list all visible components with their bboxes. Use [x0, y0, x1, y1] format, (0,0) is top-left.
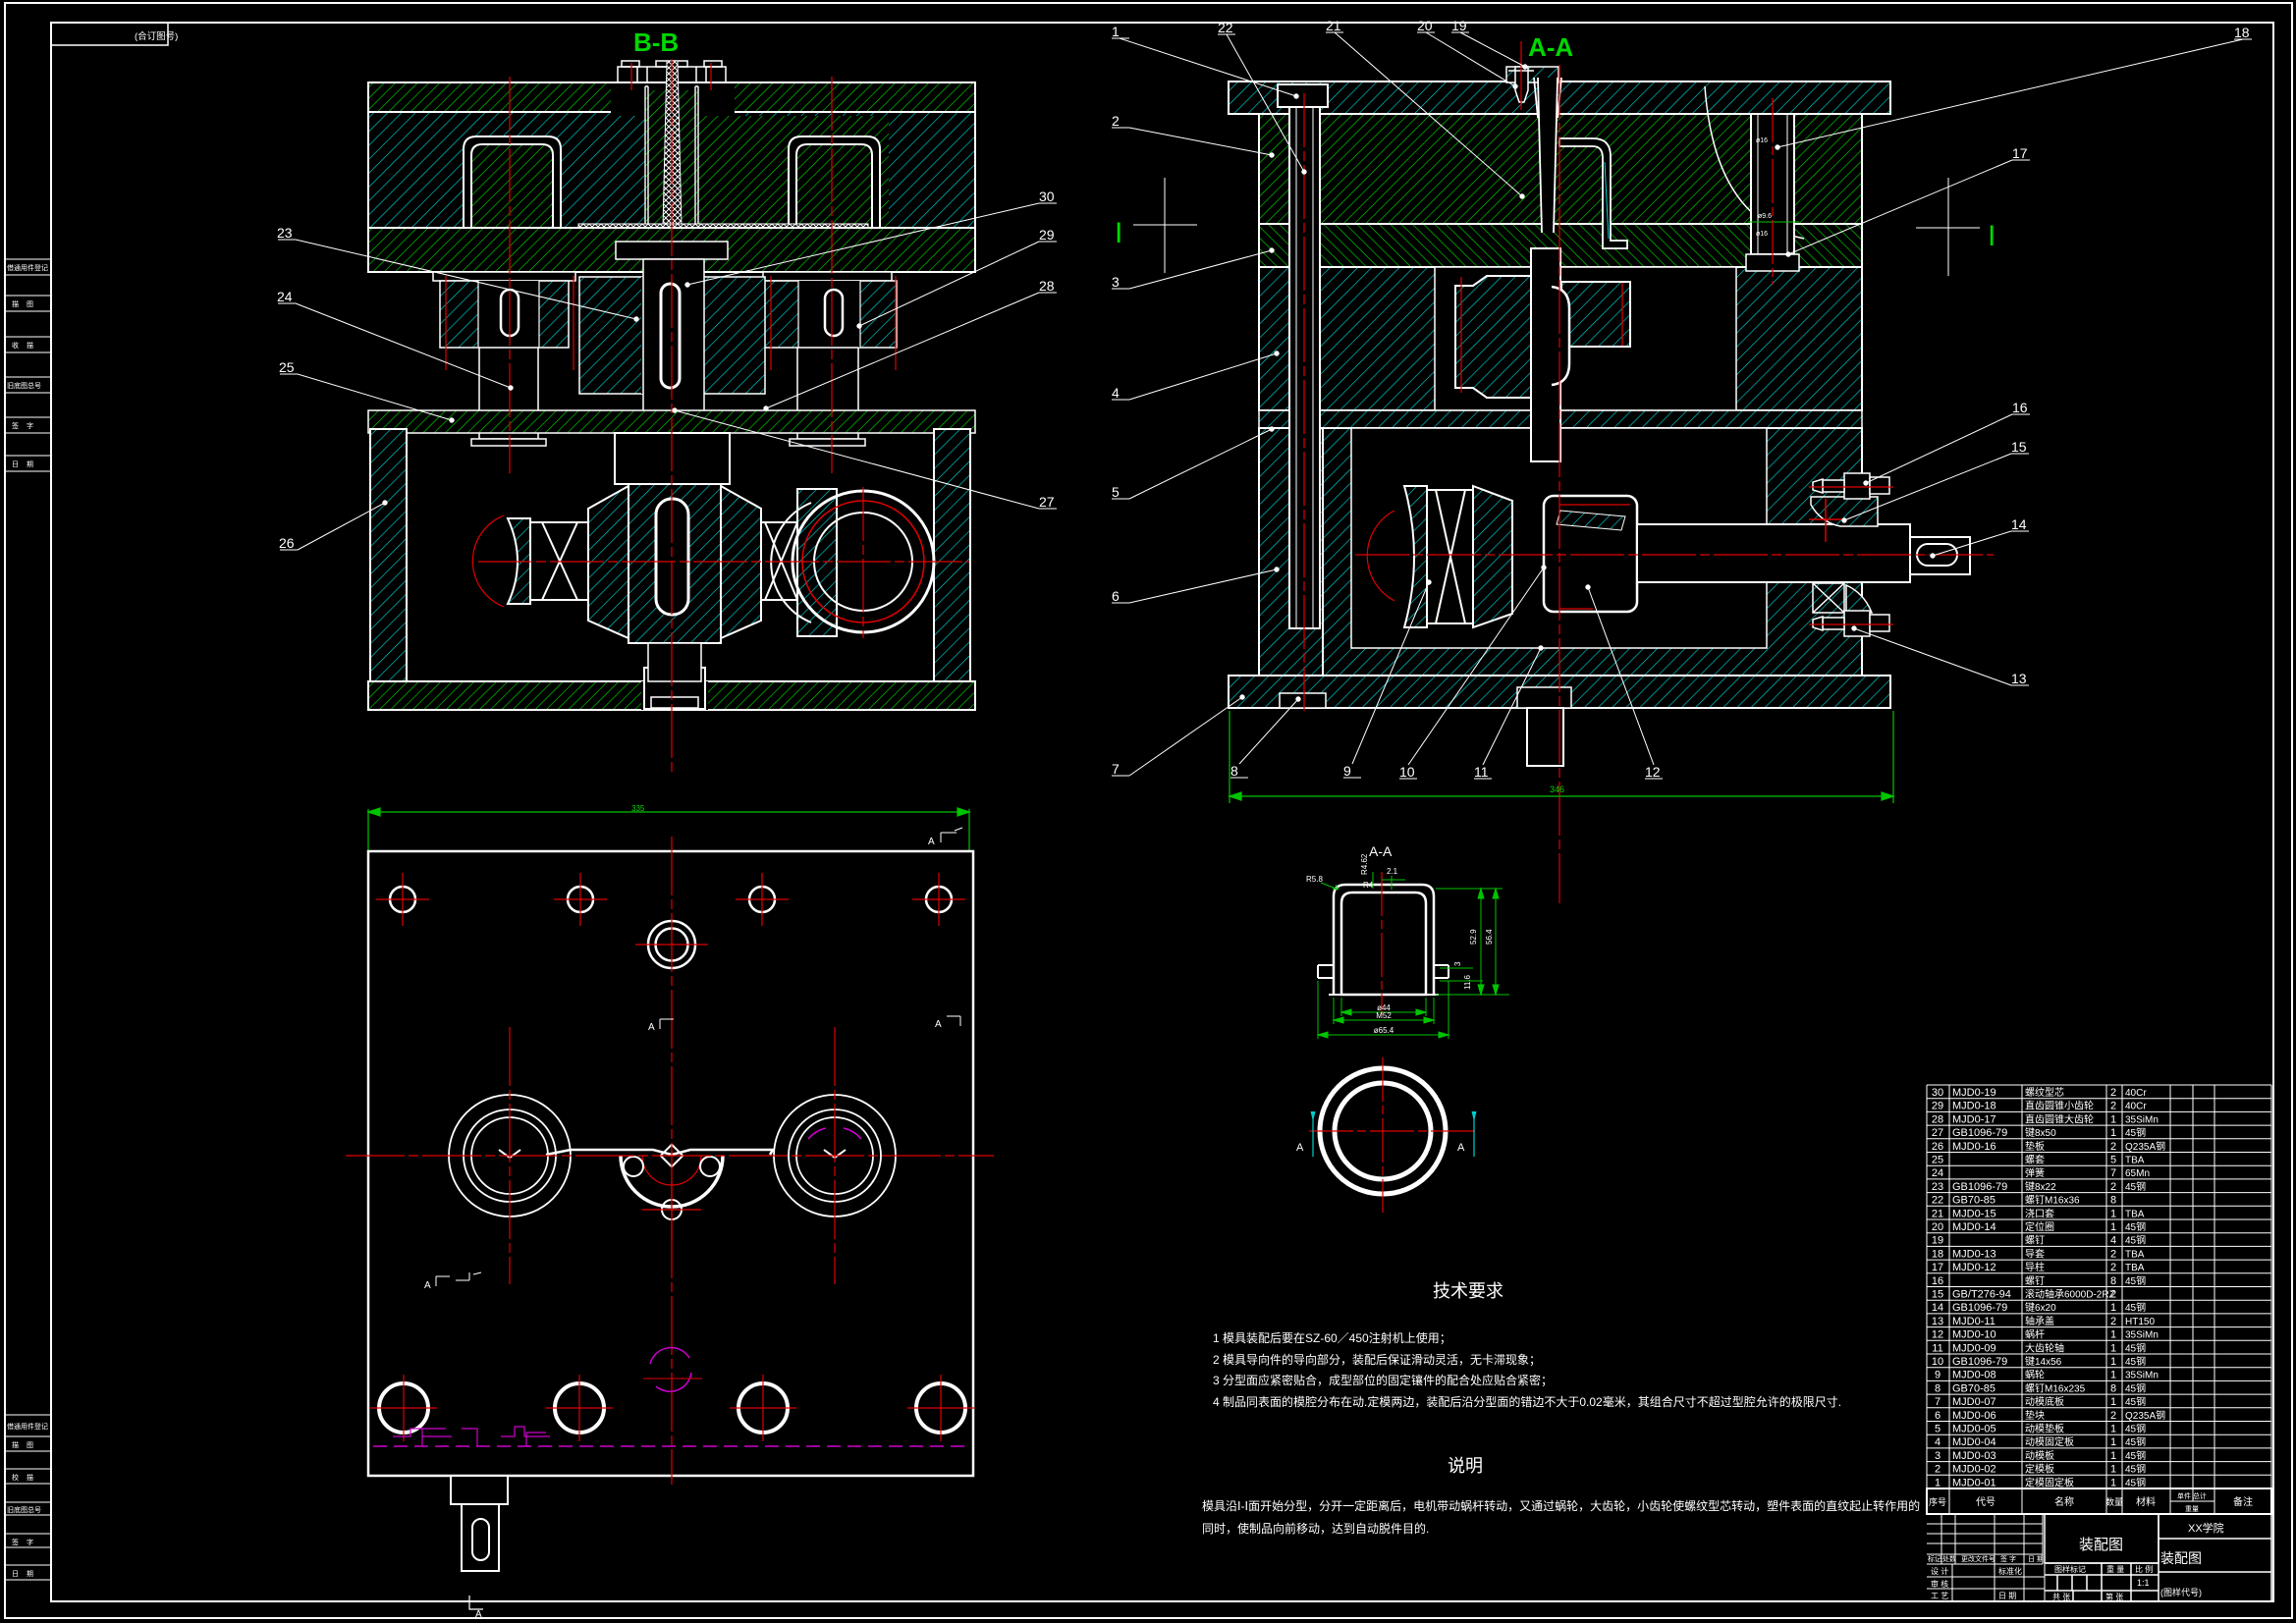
svg-text:20: 20: [1417, 18, 1433, 33]
svg-text:1: 1: [2110, 1477, 2116, 1488]
svg-text:动模底板: 动模底板: [2025, 1395, 2064, 1408]
svg-text:27: 27: [1039, 494, 1055, 510]
svg-text:16: 16: [1932, 1275, 1943, 1287]
svg-text:垫板: 垫板: [2025, 1140, 2045, 1153]
svg-text:动模板: 动模板: [2025, 1449, 2054, 1462]
svg-text:22: 22: [1932, 1195, 1943, 1207]
svg-text:MJD0-04: MJD0-04: [1952, 1436, 1996, 1448]
svg-text:旧底图总号: 旧底图总号: [7, 1505, 41, 1514]
svg-text:29: 29: [1039, 227, 1055, 243]
svg-text:45钢: 45钢: [2125, 1234, 2146, 1247]
svg-text:垫块: 垫块: [2025, 1409, 2045, 1422]
svg-text:MJD0-07: MJD0-07: [1952, 1396, 1996, 1408]
svg-text:共 张: 共 张: [2052, 1593, 2070, 1601]
svg-text:9: 9: [1935, 1370, 1941, 1381]
svg-text:技术要求: 技术要求: [1433, 1281, 1503, 1301]
svg-text:MJD0-18: MJD0-18: [1952, 1101, 1996, 1112]
svg-text:MJD0-14: MJD0-14: [1952, 1221, 1996, 1233]
svg-text:27: 27: [1932, 1127, 1943, 1139]
svg-text:A: A: [424, 1280, 431, 1291]
svg-text:GB70-85: GB70-85: [1952, 1195, 1995, 1207]
svg-text:21: 21: [1932, 1208, 1943, 1219]
svg-text:GB1096-79: GB1096-79: [1952, 1356, 2007, 1368]
svg-text:18: 18: [1932, 1248, 1943, 1260]
svg-text:签 字: 签 字: [2000, 1554, 2016, 1563]
svg-text:I: I: [1115, 217, 1122, 249]
svg-text:键6x20: 键6x20: [2025, 1301, 2056, 1314]
svg-text:14: 14: [2011, 516, 2027, 532]
svg-text:TBA: TBA: [2125, 1209, 2145, 1219]
svg-text:键8x22: 键8x22: [2025, 1180, 2056, 1193]
svg-text:45钢: 45钢: [2125, 1341, 2146, 1354]
svg-text:24: 24: [1932, 1167, 1943, 1179]
svg-text:直齿圆锥小齿轮: 直齿圆锥小齿轮: [2025, 1100, 2094, 1112]
svg-text:HT150: HT150: [2125, 1317, 2155, 1327]
svg-text:MJD0-12: MJD0-12: [1952, 1262, 1996, 1273]
svg-text:6: 6: [1935, 1410, 1941, 1422]
svg-text:6: 6: [1112, 588, 1120, 604]
svg-text:45钢: 45钢: [2125, 1463, 2146, 1476]
svg-text:45钢: 45钢: [2125, 1126, 2146, 1139]
svg-text:4: 4: [2110, 1235, 2116, 1247]
svg-text:5: 5: [1112, 484, 1120, 500]
svg-text:30: 30: [1039, 189, 1055, 204]
svg-text:A: A: [935, 1019, 942, 1030]
svg-text:大齿轮轴: 大齿轮轴: [2025, 1341, 2064, 1354]
svg-text:借通用件登记: 借通用件登记: [7, 1422, 48, 1431]
svg-text:比 例: 比 例: [2135, 1564, 2153, 1574]
svg-text:动模固定板: 动模固定板: [2025, 1435, 2074, 1448]
svg-text:8: 8: [2110, 1275, 2116, 1287]
svg-text:MJD0-16: MJD0-16: [1952, 1141, 1996, 1153]
svg-text:3: 3: [1112, 274, 1120, 290]
svg-text:校描: 校描: [12, 1473, 41, 1482]
svg-text:45钢: 45钢: [2125, 1274, 2146, 1287]
svg-text:导套: 导套: [2025, 1247, 2045, 1260]
svg-text:A: A: [475, 1609, 482, 1620]
svg-text:2: 2: [2110, 1101, 2116, 1112]
svg-text:45钢: 45钢: [2125, 1395, 2146, 1408]
svg-text:28: 28: [1932, 1113, 1943, 1125]
svg-text:MJD0-13: MJD0-13: [1952, 1248, 1996, 1260]
svg-text:1: 1: [1112, 24, 1120, 39]
svg-text:Q235A钢: Q235A钢: [2125, 1140, 2165, 1153]
svg-text:动模垫板: 动模垫板: [2025, 1423, 2064, 1435]
svg-text:MJD0-19: MJD0-19: [1952, 1087, 1996, 1099]
svg-text:1: 1: [2110, 1329, 2116, 1341]
svg-text:键14x56: 键14x56: [2025, 1355, 2062, 1368]
svg-text:3 分型面应紧密贴合，成型部位的固定镶件的配合处应贴合紧密: 3 分型面应紧密贴合，成型部位的固定镶件的配合处应贴合紧密；: [1213, 1373, 1553, 1387]
svg-text:1: 1: [2110, 1450, 2116, 1462]
svg-text:2: 2: [2110, 1316, 2116, 1327]
svg-text:MJD0-06: MJD0-06: [1952, 1410, 1996, 1422]
svg-text:7: 7: [1935, 1396, 1941, 1408]
svg-text:螺钉M16x36: 螺钉M16x36: [2025, 1195, 2080, 1207]
svg-text:3: 3: [1935, 1450, 1941, 1462]
svg-text:4 制品同表面的模腔分布在动.定模两边，装配后沿分型面的错: 4 制品同表面的模腔分布在动.定模两边，装配后沿分型面的错边不大于0.02毫米，…: [1213, 1394, 1841, 1409]
svg-text:MJD0-05: MJD0-05: [1952, 1424, 1996, 1435]
svg-text:R5.8: R5.8: [1306, 875, 1323, 884]
svg-text:40Cr: 40Cr: [2125, 1102, 2147, 1112]
svg-text:10: 10: [1932, 1356, 1943, 1368]
svg-text:序号: 序号: [1929, 1496, 1946, 1507]
svg-text:GB/T276-94: GB/T276-94: [1952, 1289, 2011, 1301]
svg-text:签字: 签字: [12, 1538, 41, 1546]
svg-text:1: 1: [2110, 1436, 2116, 1448]
svg-text:14: 14: [1932, 1302, 1943, 1314]
svg-text:MJD0-15: MJD0-15: [1952, 1208, 1996, 1219]
svg-text:签字: 签字: [12, 421, 41, 430]
svg-text:45钢: 45钢: [2125, 1220, 2146, 1233]
svg-text:19: 19: [1932, 1235, 1943, 1247]
svg-text:11: 11: [1474, 764, 1489, 780]
svg-text:45钢: 45钢: [2125, 1355, 2146, 1368]
svg-text:MJD0-11: MJD0-11: [1952, 1316, 1995, 1327]
svg-text:1: 1: [2110, 1127, 2116, 1139]
svg-text:2: 2: [2110, 1262, 2116, 1273]
svg-text:第 张: 第 张: [2105, 1592, 2123, 1601]
svg-text:Q235A钢: Q235A钢: [2125, 1409, 2165, 1422]
svg-text:21: 21: [1326, 18, 1341, 33]
svg-text:45钢: 45钢: [2125, 1435, 2146, 1448]
svg-text:35SiMn: 35SiMn: [2125, 1330, 2159, 1341]
svg-text:收描: 收描: [12, 341, 41, 350]
svg-text:1: 1: [2110, 1342, 2116, 1354]
svg-text:旧底图总号: 旧底图总号: [7, 381, 41, 390]
svg-text:1: 1: [2110, 1302, 2116, 1314]
svg-text:ø16: ø16: [1756, 231, 1768, 238]
svg-text:浇口套: 浇口套: [2025, 1207, 2054, 1219]
svg-text:ø16: ø16: [1756, 137, 1768, 144]
svg-text:4: 4: [1112, 385, 1120, 401]
svg-text:定模固定板: 定模固定板: [2025, 1476, 2074, 1488]
svg-text:螺纹型芯: 螺纹型芯: [2025, 1086, 2064, 1099]
svg-text:2: 2: [2110, 1141, 2116, 1153]
svg-text:更改文件号: 更改文件号: [1961, 1554, 1995, 1563]
svg-text:8: 8: [1935, 1382, 1941, 1394]
svg-text:16: 16: [2012, 400, 2028, 415]
svg-text:A: A: [648, 1022, 655, 1033]
svg-text:I: I: [1988, 220, 1995, 252]
svg-text:2: 2: [2110, 1248, 2116, 1260]
svg-text:R4: R4: [1363, 881, 1374, 890]
svg-text:2: 2: [2110, 1087, 2116, 1099]
svg-text:29: 29: [1932, 1101, 1943, 1112]
svg-text:GB1096-79: GB1096-79: [1952, 1302, 2007, 1314]
svg-text:52.9: 52.9: [1469, 929, 1478, 945]
svg-text:35SiMn: 35SiMn: [2125, 1371, 2159, 1381]
svg-text:13: 13: [2011, 671, 2027, 686]
svg-text:45钢: 45钢: [2125, 1476, 2146, 1488]
svg-text:日 期: 日 期: [2028, 1555, 2044, 1563]
svg-text:MJD0-02: MJD0-02: [1952, 1464, 1996, 1476]
svg-text:1: 1: [2110, 1221, 2116, 1233]
svg-text:日期: 日期: [12, 460, 41, 468]
svg-text:9: 9: [1343, 763, 1351, 779]
svg-text:日期: 日期: [12, 1570, 41, 1578]
svg-text:28: 28: [1039, 278, 1055, 294]
svg-text:45钢: 45钢: [2125, 1449, 2146, 1462]
svg-text:A: A: [928, 837, 935, 847]
svg-text:日 期: 日 期: [1998, 1592, 2016, 1600]
svg-text:22: 22: [1218, 20, 1233, 35]
svg-text:15: 15: [1932, 1289, 1943, 1301]
svg-text:1 模具装配后要在SZ-60／450注射机上使用；: 1 模具装配后要在SZ-60／450注射机上使用；: [1213, 1330, 1451, 1345]
svg-text:12: 12: [1932, 1329, 1943, 1341]
svg-text:R4.62: R4.62: [1360, 853, 1369, 875]
svg-text:2: 2: [2110, 1181, 2116, 1193]
svg-text:螺钉: 螺钉: [2025, 1275, 2045, 1287]
svg-text:MJD0-10: MJD0-10: [1952, 1329, 1996, 1341]
svg-text:说明: 说明: [1448, 1456, 1483, 1476]
svg-text:1: 1: [2110, 1370, 2116, 1381]
svg-text:2: 2: [1112, 113, 1120, 129]
svg-text:26: 26: [1932, 1141, 1943, 1153]
svg-text:25: 25: [1932, 1155, 1943, 1166]
svg-text:346: 346: [1550, 784, 1564, 794]
svg-text:15: 15: [2011, 439, 2027, 455]
svg-text:GB1096-79: GB1096-79: [1952, 1127, 2007, 1139]
svg-text:装配图: 装配图: [2079, 1537, 2123, 1553]
svg-text:定模板: 定模板: [2025, 1463, 2054, 1476]
svg-text:1: 1: [1935, 1477, 1941, 1488]
svg-text:2: 2: [2110, 1289, 2116, 1301]
svg-text:备注: 备注: [2233, 1495, 2253, 1508]
svg-text:2 模具导向件的导向部分，装配后保证滑动灵活，无卡滞现象；: 2 模具导向件的导向部分，装配后保证滑动灵活，无卡滞现象；: [1213, 1352, 1541, 1367]
svg-text:5: 5: [2110, 1155, 2116, 1166]
svg-text:蜗轮: 蜗轮: [2025, 1369, 2045, 1381]
svg-text:图样标记: 图样标记: [2054, 1564, 2086, 1574]
svg-text:23: 23: [277, 225, 293, 241]
svg-text:标记: 标记: [1928, 1554, 1941, 1563]
svg-text:11.6: 11.6: [1463, 974, 1472, 990]
svg-text:2.1: 2.1: [1387, 867, 1398, 876]
svg-text:35SiMn: 35SiMn: [2125, 1114, 2159, 1125]
svg-text:M52: M52: [1376, 1011, 1392, 1020]
svg-text:模具沿Ⅰ-Ⅰ面开始分型，分开一定距离后，电机带动蜗杆转动，又: 模具沿Ⅰ-Ⅰ面开始分型，分开一定距离后，电机带动蜗杆转动，又通过蜗轮，大齿轮，小…: [1202, 1498, 1920, 1513]
svg-text:滚动轴承6000D-2RZ: 滚动轴承6000D-2RZ: [2025, 1288, 2115, 1301]
svg-text:2: 2: [2110, 1410, 2116, 1422]
svg-text:65Mn: 65Mn: [2125, 1168, 2150, 1179]
svg-text:7: 7: [2110, 1167, 2116, 1179]
svg-text:标准化: 标准化: [1998, 1566, 2022, 1576]
svg-text:8: 8: [1230, 763, 1238, 779]
svg-text:MJD0-09: MJD0-09: [1952, 1342, 1996, 1354]
svg-text:ø9.6: ø9.6: [1758, 213, 1772, 220]
svg-text:1: 1: [2110, 1424, 2116, 1435]
svg-text:XX学院: XX学院: [2188, 1521, 2224, 1535]
svg-text:弹簧: 弹簧: [2025, 1166, 2045, 1179]
svg-text:描图: 描图: [12, 1440, 41, 1449]
svg-text:MJD0-08: MJD0-08: [1952, 1370, 1996, 1381]
svg-text:A-A: A-A: [1528, 32, 1573, 62]
svg-text:TBA: TBA: [2125, 1156, 2145, 1166]
svg-text:GB70-85: GB70-85: [1952, 1382, 1995, 1394]
svg-text:30: 30: [1932, 1087, 1943, 1099]
svg-text:键8x50: 键8x50: [2025, 1126, 2056, 1139]
svg-text:13: 13: [1932, 1316, 1943, 1327]
svg-text:处数: 处数: [1942, 1554, 1956, 1563]
svg-text:单件 总计: 单件 总计: [2177, 1491, 2207, 1500]
svg-text:24: 24: [277, 289, 293, 304]
svg-text:MJD0-01: MJD0-01: [1952, 1477, 1996, 1488]
svg-text:审 核: 审 核: [1931, 1579, 1948, 1589]
svg-text:同时，使制品向前移动，达到自动脱件目的.: 同时，使制品向前移动，达到自动脱件目的.: [1202, 1521, 1429, 1536]
svg-text:MJD0-17: MJD0-17: [1952, 1113, 1996, 1125]
svg-text:螺套: 螺套: [2025, 1154, 2045, 1166]
svg-text:10: 10: [1399, 764, 1415, 780]
svg-text:1: 1: [2110, 1208, 2116, 1219]
svg-text:TBA: TBA: [2125, 1249, 2145, 1260]
svg-text:45钢: 45钢: [2125, 1180, 2146, 1193]
svg-text:1: 1: [2110, 1396, 2116, 1408]
svg-text:蜗杆: 蜗杆: [2025, 1329, 2045, 1341]
svg-text:45钢: 45钢: [2125, 1301, 2146, 1314]
svg-text:借通用件登记: 借通用件登记: [7, 263, 48, 272]
svg-text:A-A: A-A: [1369, 843, 1393, 859]
svg-text:定位圈: 定位圈: [2025, 1220, 2054, 1233]
svg-text:螺钉M16x235: 螺钉M16x235: [2025, 1382, 2086, 1394]
svg-text:重量: 重量: [2185, 1505, 2199, 1513]
svg-text:335: 335: [631, 804, 645, 813]
svg-text:(图样代号): (图样代号): [2160, 1587, 2202, 1597]
svg-text:导柱: 导柱: [2025, 1261, 2045, 1273]
svg-text:8: 8: [2110, 1195, 2116, 1207]
svg-text:4: 4: [1935, 1436, 1941, 1448]
svg-text:MJD0-03: MJD0-03: [1952, 1450, 1996, 1462]
svg-text:56.4: 56.4: [1485, 929, 1494, 945]
svg-text:18: 18: [2234, 25, 2250, 40]
svg-text:17: 17: [2012, 145, 2028, 161]
svg-text:20: 20: [1932, 1221, 1943, 1233]
svg-text:GB1096-79: GB1096-79: [1952, 1181, 2007, 1193]
svg-text:25: 25: [279, 359, 295, 375]
svg-text:代号: 代号: [1976, 1496, 1995, 1508]
svg-text:名称: 名称: [2054, 1495, 2074, 1508]
svg-text:3: 3: [1453, 961, 1462, 966]
svg-text:(合订图号): (合订图号): [135, 30, 178, 42]
svg-text:装配图: 装配图: [2160, 1550, 2202, 1566]
svg-text:1: 1: [2110, 1356, 2116, 1368]
svg-text:7: 7: [1112, 761, 1120, 777]
svg-text:TBA: TBA: [2125, 1263, 2145, 1273]
svg-text:12: 12: [1645, 764, 1661, 780]
svg-text:23: 23: [1932, 1181, 1943, 1193]
svg-text:数量: 数量: [2105, 1496, 2123, 1507]
svg-text:1:1: 1:1: [2137, 1578, 2150, 1588]
svg-text:螺钉: 螺钉: [2025, 1235, 2045, 1247]
svg-text:B-B: B-B: [633, 27, 679, 57]
svg-text:描图: 描图: [12, 299, 41, 308]
svg-text:17: 17: [1932, 1262, 1943, 1273]
svg-text:设 计: 设 计: [1931, 1566, 1948, 1576]
svg-text:轴承盖: 轴承盖: [2025, 1315, 2054, 1327]
svg-text:A: A: [1457, 1142, 1465, 1154]
svg-text:1: 1: [2110, 1464, 2116, 1476]
svg-text:11: 11: [1932, 1342, 1942, 1354]
svg-text:26: 26: [279, 535, 295, 551]
svg-text:5: 5: [1935, 1424, 1941, 1435]
svg-text:2: 2: [1935, 1464, 1941, 1476]
svg-text:40Cr: 40Cr: [2125, 1088, 2147, 1099]
svg-text:19: 19: [1451, 18, 1467, 33]
svg-text:45钢: 45钢: [2125, 1381, 2146, 1394]
svg-text:A: A: [1296, 1142, 1304, 1154]
svg-text:重 量: 重 量: [2106, 1564, 2124, 1574]
svg-text:8: 8: [2110, 1382, 2116, 1394]
svg-text:ø65.4: ø65.4: [1374, 1026, 1394, 1035]
svg-text:工 艺: 工 艺: [1931, 1592, 1948, 1600]
svg-text:直齿圆锥大齿轮: 直齿圆锥大齿轮: [2025, 1112, 2094, 1125]
svg-text:45钢: 45钢: [2125, 1423, 2146, 1435]
svg-text:1: 1: [2110, 1113, 2116, 1125]
svg-text:材料: 材料: [2136, 1495, 2156, 1508]
